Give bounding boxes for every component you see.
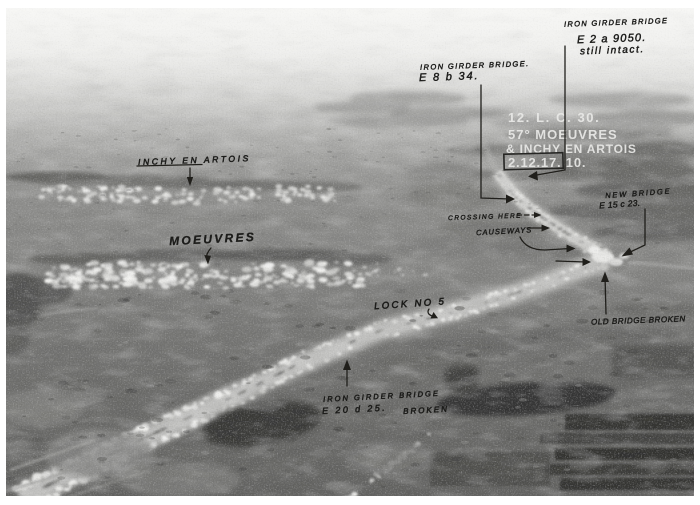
- svg-text:57° MOEUVRES: 57° MOEUVRES: [508, 127, 618, 142]
- svg-text:12. L. C. 30.: 12. L. C. 30.: [508, 110, 600, 125]
- svg-text:E 8 b 34.: E 8 b 34.: [419, 70, 480, 84]
- svg-text:2.12.17. 10.: 2.12.17. 10.: [508, 155, 586, 170]
- svg-text:still intact.: still intact.: [580, 44, 645, 57]
